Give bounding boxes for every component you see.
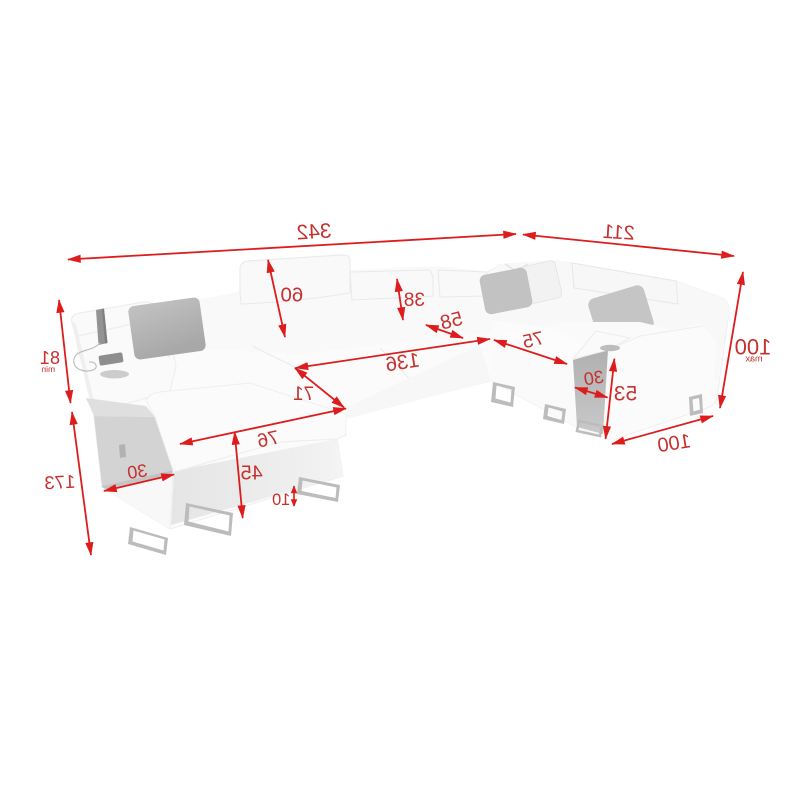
svg-text:30: 30 [582, 367, 605, 390]
svg-text:173: 173 [44, 471, 76, 494]
svg-text:min: min [41, 364, 55, 374]
svg-text:76: 76 [255, 426, 281, 452]
svg-text:53: 53 [614, 382, 637, 405]
svg-text:100: 100 [656, 430, 692, 457]
svg-text:38: 38 [404, 290, 425, 311]
svg-text:71: 71 [293, 384, 314, 405]
svg-text:10: 10 [272, 491, 290, 509]
svg-text:342: 342 [296, 220, 332, 245]
svg-text:max: max [745, 354, 763, 364]
svg-text:30: 30 [126, 460, 149, 483]
svg-text:60: 60 [280, 284, 303, 307]
svg-text:211: 211 [602, 221, 635, 245]
svg-text:45: 45 [240, 463, 262, 485]
